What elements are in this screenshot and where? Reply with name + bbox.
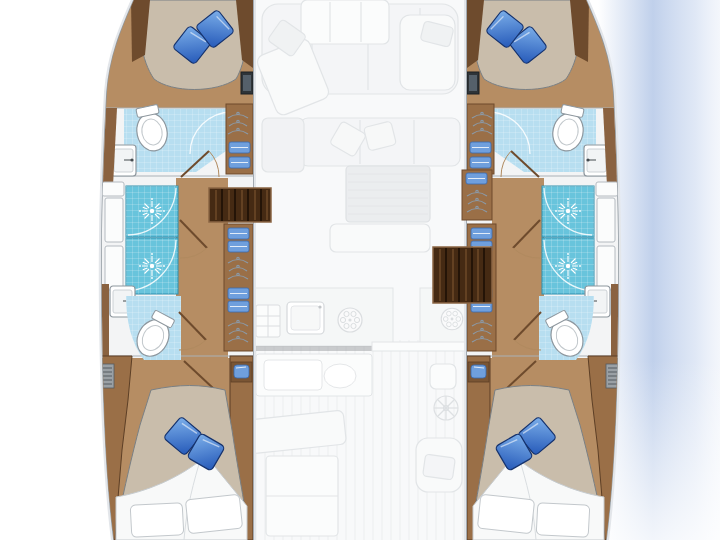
starboard-entry-steps: [433, 247, 492, 303]
bow-table: [301, 0, 389, 44]
port-entry-steps: [209, 188, 271, 222]
floor-plan-canvas: [0, 0, 720, 540]
helm-module: [430, 364, 456, 389]
port-hull: [90, 0, 255, 540]
floor-plan: [0, 0, 720, 540]
cockpit-pillow: [423, 454, 456, 480]
galley-sink: [287, 302, 324, 334]
sliding-door: [372, 342, 472, 351]
salon-bench: [330, 224, 430, 252]
salon-chaise: [262, 118, 304, 172]
helm-wheel: [434, 396, 458, 420]
starboard-hanger-rack: [462, 170, 492, 220]
